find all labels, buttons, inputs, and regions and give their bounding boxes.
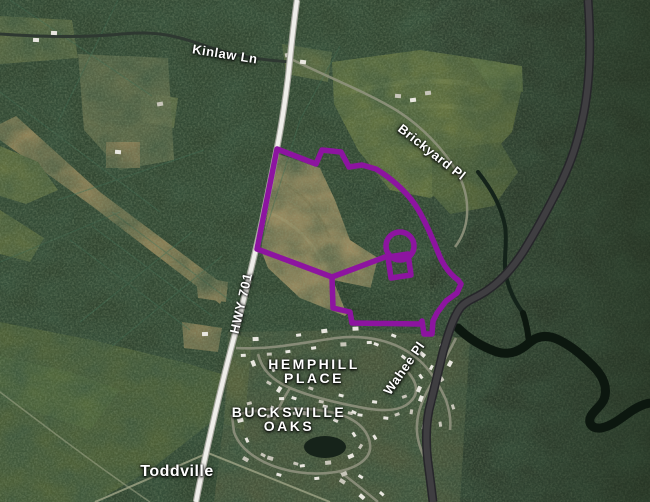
east-shade <box>430 0 650 502</box>
house <box>267 352 272 355</box>
house <box>367 341 372 344</box>
house <box>314 477 319 481</box>
house <box>395 94 401 98</box>
house <box>300 464 305 468</box>
house <box>340 342 346 346</box>
house <box>321 329 327 334</box>
house <box>352 326 358 330</box>
house <box>293 412 298 415</box>
house <box>425 91 431 96</box>
house <box>325 460 331 465</box>
house <box>115 150 121 154</box>
house <box>279 397 284 400</box>
house <box>300 60 306 65</box>
satellite-layer <box>0 0 650 502</box>
house <box>241 354 246 357</box>
house <box>383 416 388 420</box>
house <box>202 332 208 336</box>
house <box>33 38 39 42</box>
house <box>267 414 272 417</box>
house <box>252 337 258 341</box>
satellite-map[interactable]: Kinlaw Ln Brickyard Pl HWY 701 HEMPHILL … <box>0 0 650 502</box>
house <box>357 413 362 417</box>
house <box>410 98 416 103</box>
house <box>372 400 377 404</box>
house <box>51 31 57 35</box>
pond <box>304 436 346 458</box>
